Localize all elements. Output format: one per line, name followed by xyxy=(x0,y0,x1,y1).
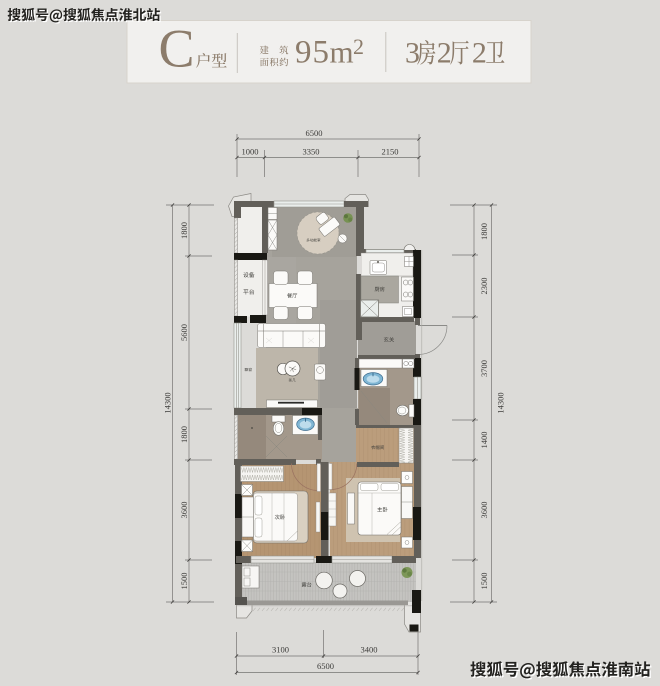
svg-text:1800: 1800 xyxy=(179,426,189,443)
svg-text:3100: 3100 xyxy=(272,644,289,654)
svg-text:C: C xyxy=(159,19,195,79)
svg-text:1800: 1800 xyxy=(479,223,489,240)
svg-text:5600: 5600 xyxy=(179,324,189,341)
svg-text:14300: 14300 xyxy=(163,392,173,413)
svg-text:3700: 3700 xyxy=(479,360,489,377)
svg-text:6500: 6500 xyxy=(317,661,334,671)
svg-text:2: 2 xyxy=(353,34,364,59)
svg-text:1400: 1400 xyxy=(479,432,489,449)
svg-text:2: 2 xyxy=(472,37,487,70)
svg-text:95: 95 xyxy=(295,35,330,71)
svg-text:m: m xyxy=(330,35,354,70)
svg-text:2: 2 xyxy=(437,37,452,70)
svg-text:3600: 3600 xyxy=(479,502,489,519)
svg-text:3600: 3600 xyxy=(179,502,189,519)
svg-text:14300: 14300 xyxy=(496,392,506,413)
svg-text:6500: 6500 xyxy=(306,128,323,138)
svg-text:1500: 1500 xyxy=(479,573,489,590)
svg-text:1500: 1500 xyxy=(179,573,189,590)
svg-text:3: 3 xyxy=(405,37,420,70)
svg-text:1000: 1000 xyxy=(242,146,259,156)
svg-text:2300: 2300 xyxy=(479,278,489,295)
svg-text:2150: 2150 xyxy=(382,146,399,156)
svg-text:3400: 3400 xyxy=(361,644,378,654)
svg-text:1800: 1800 xyxy=(179,222,189,239)
svg-text:3350: 3350 xyxy=(303,146,320,156)
